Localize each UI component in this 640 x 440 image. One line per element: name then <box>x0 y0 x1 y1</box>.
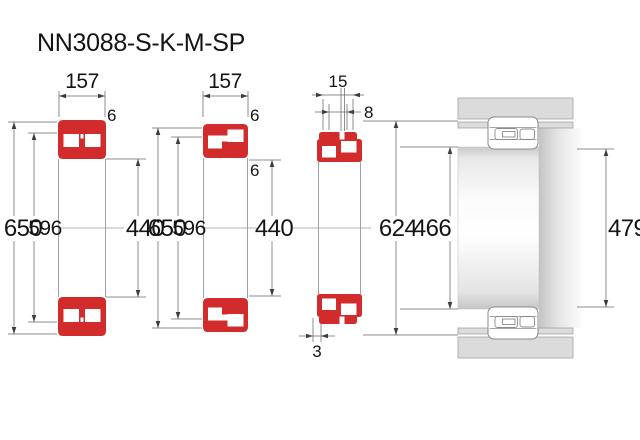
view1-roller-window-right <box>85 134 101 147</box>
view3-cage-notch <box>340 132 345 140</box>
view2-roller-window-right <box>228 130 244 143</box>
dim-view2-rib-label: 596 <box>172 217 206 240</box>
dim-view3-groove-width-label: 8 <box>364 103 373 122</box>
dim-view1-width: 157 <box>59 70 105 117</box>
housing-block-bottom <box>458 337 573 358</box>
dim-view3-od-label: 624 <box>379 215 417 242</box>
shaft <box>458 147 539 309</box>
dim-view3-cage-width-label: 15 <box>329 72 348 91</box>
dim-view2-rib-diameter: 596 <box>171 137 206 319</box>
view3-roller-window-left <box>322 146 336 158</box>
bearing-drawing-page: { "title": "NN3088-S-K-M-SP", "colors": … <box>0 0 640 440</box>
view2-bottom-section <box>203 298 248 332</box>
dim-view3-edge-offset-label: 3 <box>312 342 321 361</box>
dim-view2-width-label: 157 <box>208 70 242 93</box>
dim-view1-rib-label: 596 <box>28 217 62 240</box>
dim-view2-bore-diameter: 440 <box>249 160 293 296</box>
view3-bottom-section <box>317 294 362 325</box>
dim-view1-rib-diameter: 596 <box>28 133 62 322</box>
view1-bottom-section <box>58 297 106 336</box>
dim-view1-width-label: 157 <box>65 70 99 93</box>
view1-top-section <box>58 120 106 159</box>
view3-top-section <box>317 132 362 163</box>
mounting-figure <box>458 98 585 358</box>
view2-roller-window-left <box>208 136 222 149</box>
view1-roller-window-left <box>64 134 80 147</box>
dim-view2-width: 157 <box>203 70 248 117</box>
mounted-bearing-top <box>488 117 538 149</box>
housing-bore-wall <box>539 128 585 328</box>
dim-view3-groove-width-lines <box>315 104 361 130</box>
mounted-bearing-bottom <box>488 307 538 339</box>
dim-mounting-abutment-diameter: 479 <box>577 149 640 307</box>
dim-mounting-abutment-label: 479 <box>608 215 640 242</box>
view1-cage-notch <box>81 134 84 139</box>
view2-cage-notch <box>222 136 228 142</box>
dim-view3-edge-offset: 3 <box>299 318 335 361</box>
housing-block-top <box>458 98 573 119</box>
mounted-bearing-outline <box>488 117 538 149</box>
dim-view2-bore-label: 440 <box>255 215 293 242</box>
dim-view2-outer-ring-width-label: 6 <box>250 106 259 125</box>
dim-view1-outer-ring-width-label: 6 <box>107 106 116 125</box>
dim-view3-cage-width: 15 <box>312 72 364 131</box>
view2-top-section <box>203 124 248 158</box>
bearing-technical-drawing: NN3088-S-K-M-SP <box>0 0 640 440</box>
dim-view3-id-label: 466 <box>413 215 451 242</box>
drawing-title: NN3088-S-K-M-SP <box>37 29 245 57</box>
view3-roller-window-right <box>341 141 357 153</box>
dim-view2-inner-ring-width-label: 6 <box>250 161 259 180</box>
